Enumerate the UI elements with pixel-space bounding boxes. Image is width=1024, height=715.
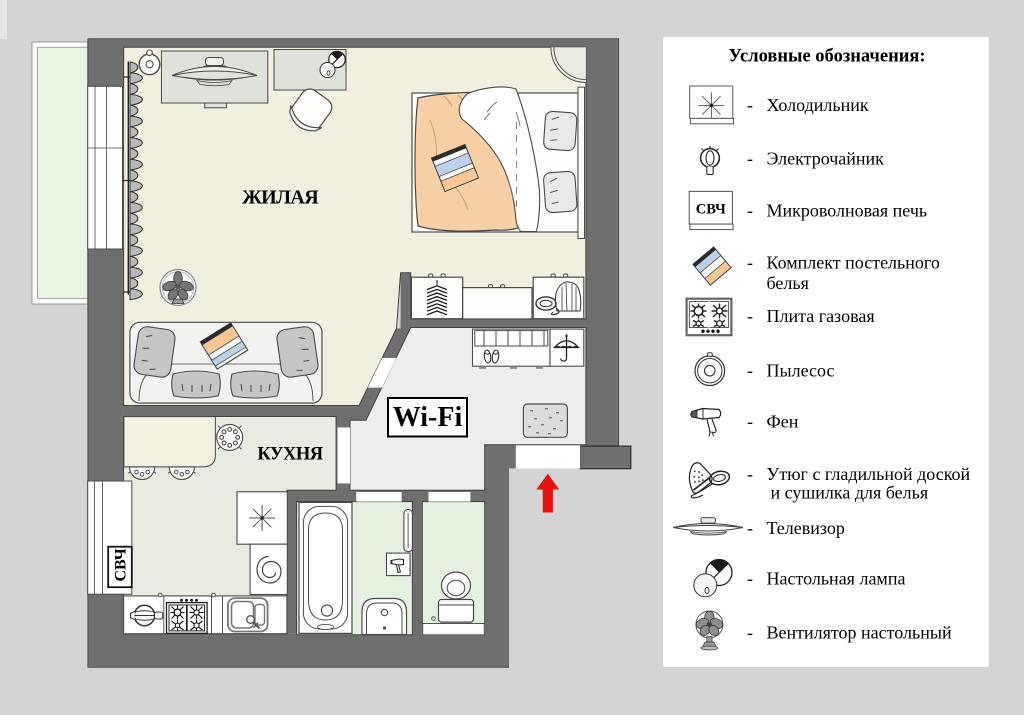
svg-text:Телевизор: Телевизор	[767, 518, 845, 538]
svg-text:СВЧ: СВЧ	[696, 202, 726, 218]
svg-text:СВЧ: СВЧ	[113, 548, 130, 581]
svg-text:Микроволновая печь: Микроволновая печь	[767, 201, 928, 221]
svg-text:-: -	[747, 201, 753, 221]
svg-text:Wi-Fi: Wi-Fi	[393, 402, 463, 433]
svg-text:Плита газовая: Плита газовая	[767, 306, 875, 326]
svg-text:Комплект постельного: Комплект постельного	[767, 253, 940, 273]
svg-text:Вентилятор настольный: Вентилятор настольный	[767, 623, 952, 643]
svg-text:Холодильник: Холодильник	[767, 95, 869, 115]
svg-text:-: -	[747, 518, 753, 538]
svg-text:КУХНЯ: КУХНЯ	[257, 445, 323, 465]
svg-text:Фен: Фен	[767, 412, 799, 432]
svg-text:-: -	[747, 253, 753, 273]
svg-text:ЖИЛАЯ: ЖИЛАЯ	[242, 187, 319, 209]
svg-text:Условные обозначения:: Условные обозначения:	[728, 47, 925, 67]
svg-text:и сушилка для белья: и сушилка для белья	[771, 483, 929, 503]
svg-text:Настольная лампа: Настольная лампа	[767, 569, 906, 589]
svg-text:-: -	[747, 149, 753, 169]
svg-text:белья: белья	[767, 273, 809, 293]
svg-text:-: -	[747, 623, 753, 643]
svg-text:-: -	[747, 464, 753, 484]
svg-text:-: -	[747, 361, 753, 381]
svg-text:Утюг с гладильной доской: Утюг с гладильной доской	[767, 464, 971, 484]
svg-text:-: -	[747, 95, 753, 115]
svg-text:Пылесос: Пылесос	[767, 361, 835, 381]
svg-text:Электрочайник: Электрочайник	[767, 149, 885, 169]
svg-text:-: -	[747, 306, 753, 326]
svg-text:-: -	[747, 569, 753, 589]
svg-text:-: -	[747, 412, 753, 432]
